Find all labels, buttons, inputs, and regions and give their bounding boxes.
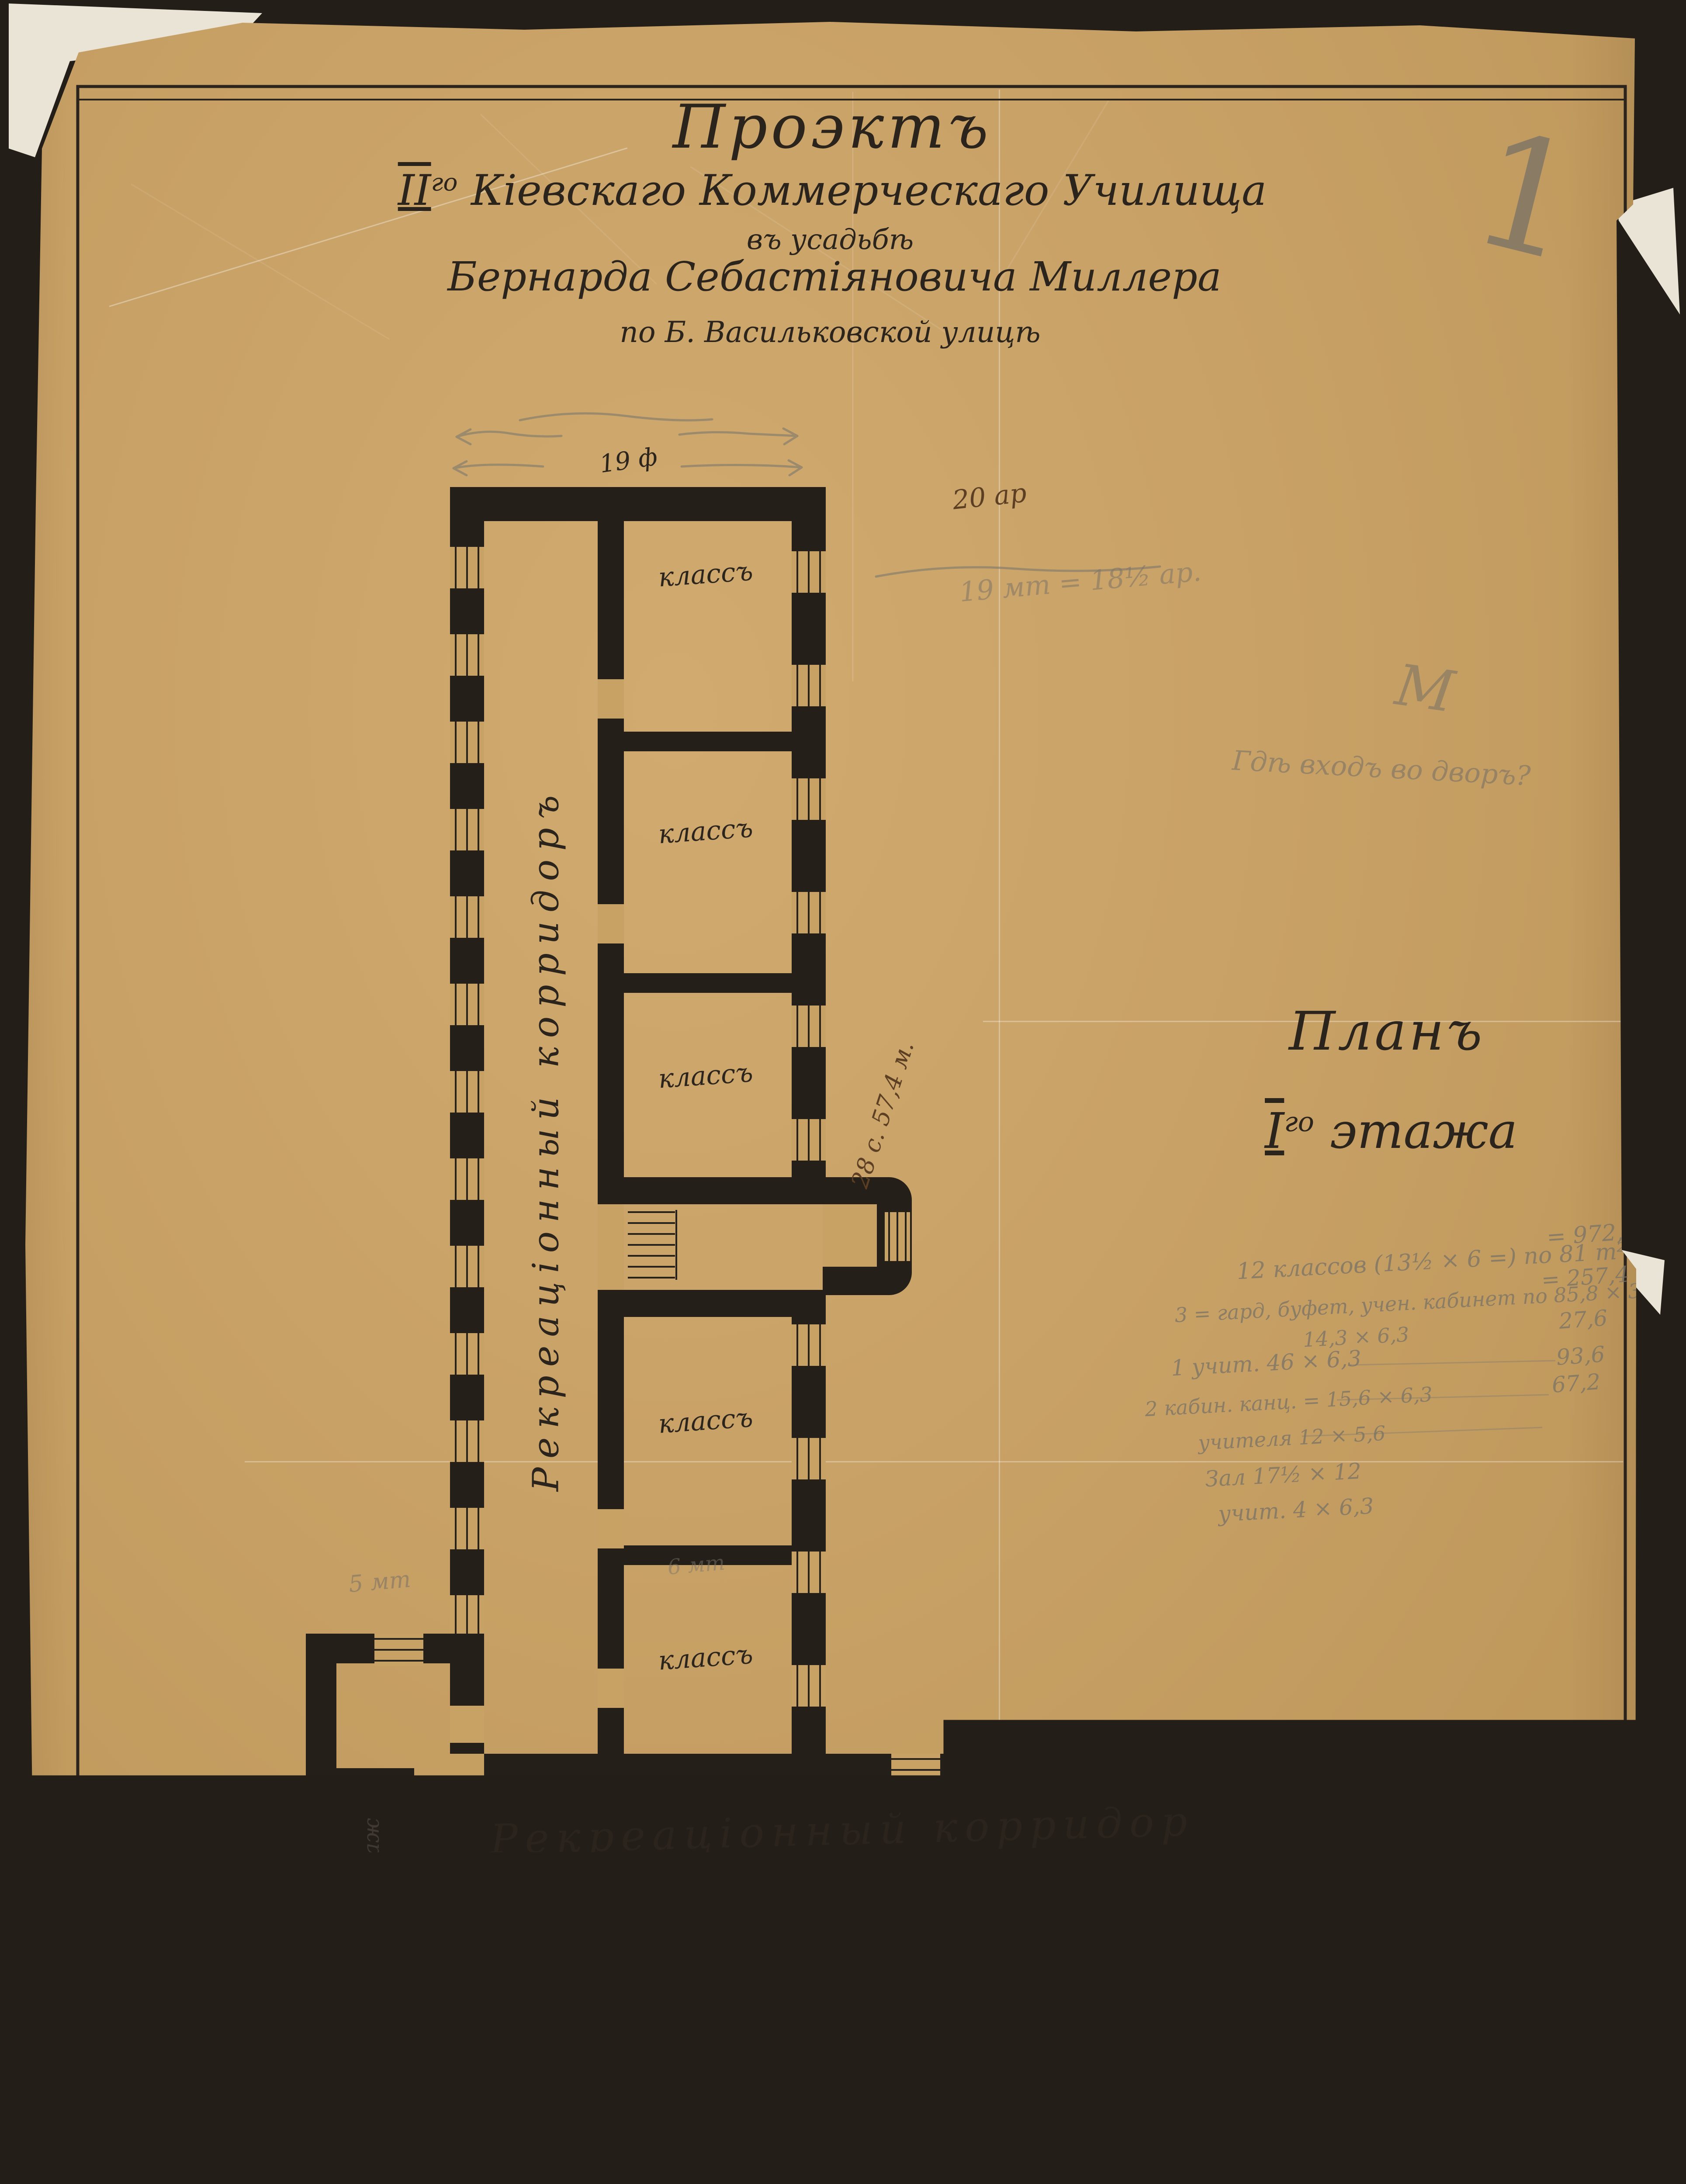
scanned-drawing-photo: { "document": { "kind": "architectural f…: [0, 0, 1686, 2184]
upper-wing-walls: [450, 487, 826, 1754]
plan-label-word: Планъ: [1289, 1000, 1485, 1062]
title-line-2: IIго Кіевскаго Коммерческаго Училища: [384, 166, 1280, 215]
pencil-room-depth: 6 мт: [667, 1550, 726, 1579]
annex-window: [374, 1634, 423, 1666]
calc-row-3-value: 27,6: [1558, 1305, 1608, 1334]
plan-floor-rest: этажа: [1314, 1103, 1517, 1160]
main-staircase: [636, 1946, 766, 2079]
street-entrance-bump: [555, 2124, 795, 2184]
plan-floor-sup: го: [1284, 1106, 1314, 1138]
title-line-3: въ усадьбѣ: [612, 224, 1049, 256]
plan-floor-num: I: [1265, 1103, 1284, 1160]
pencil-annex-width: 5 мт: [348, 1566, 412, 1598]
plan-label-floor: Iго этажа: [1265, 1103, 1517, 1160]
pencil-nb-mark: М: [1392, 651, 1458, 725]
title-line-4: Бернарда Себастіяновича Миллера: [437, 253, 1232, 300]
title-line-2-sup: го: [431, 168, 458, 196]
pencil-left-margin: 30 саж: [359, 1795, 384, 1926]
title-line-1: Проэктъ: [603, 92, 1062, 162]
calc-row-4-value: 93,6: [1555, 1341, 1606, 1370]
blue-pencil-scribbles: [271, 1939, 1219, 2184]
mid-wing-stair: [628, 1210, 676, 1280]
title-line-5: по Б. Васильковской улицѣ: [546, 315, 1114, 349]
annex-door-opening: [450, 1706, 484, 1743]
east-porch: [1336, 1813, 1380, 1894]
room-label-vertical-corridor: Рекреаціонный корридоръ: [526, 681, 567, 1598]
tracing-paper-sheet: 1 Проэктъ IIго Кіевскаго Коммерческаго У…: [0, 0, 1686, 2184]
title-line-2-num: II: [398, 166, 431, 215]
yard-boundary: [304, 2124, 1132, 2184]
yard-stair-blue: [1132, 2129, 1268, 2184]
pencil-yard-eighty: 80: [972, 2132, 999, 2157]
calc-row-5-value: 67,2: [1551, 1369, 1601, 1398]
title-line-2-rest: Кіевскаго Коммерческаго Училища: [457, 166, 1267, 215]
